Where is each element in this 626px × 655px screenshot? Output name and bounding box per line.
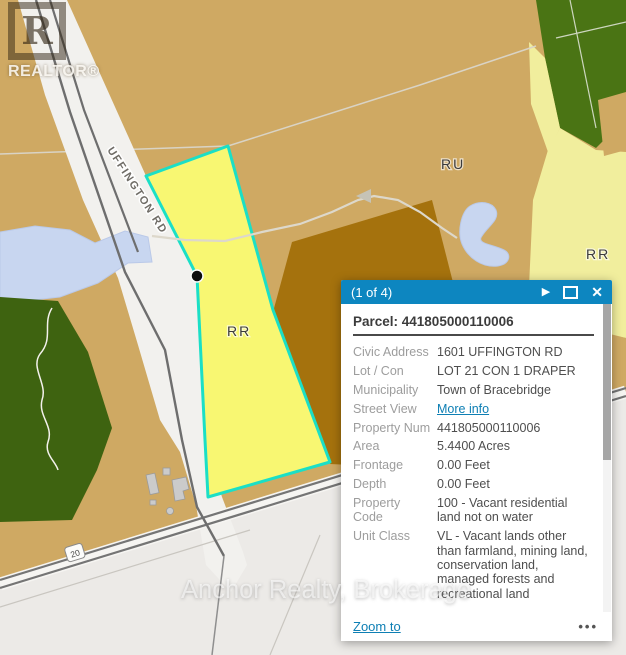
popup-header-icons: ▶ ✕ [542,285,603,299]
row-label: Lot / Con [353,364,433,378]
table-row: Property Code 100 - Vacant residential l… [353,496,594,525]
row-label: Unit Class [353,529,433,601]
table-row: Area 5.4400 Acres [353,439,594,453]
row-value: 5.4400 Acres [437,439,594,453]
row-value: 100 - Vacant residential land not on wat… [437,496,594,525]
parcel-title: Parcel: 441805000110006 [353,314,594,329]
realtor-watermark: R REALTOR® [8,2,100,81]
row-value: 0.00 Feet [437,477,594,491]
zoom-to-link[interactable]: Zoom to [353,619,401,634]
parcel-popup: (1 of 4) ▶ ✕ Parcel: 441805000110006 Civ… [341,280,612,641]
row-value: 1601 UFFINGTON RD [437,345,594,359]
scrollbar-thumb[interactable] [603,304,611,460]
next-feature-icon[interactable]: ▶ [542,287,550,298]
table-row: Frontage 0.00 Feet [353,458,594,472]
zone-label-rr-east: RR [586,246,610,262]
table-row: Unit Class VL - Vacant lands other than … [353,529,594,601]
table-row: Civic Address 1601 UFFINGTON RD [353,345,594,359]
row-label: Property Num [353,421,433,435]
row-label: Property Code [353,496,433,525]
row-value: 441805000110006 [437,421,594,435]
divider [353,334,594,336]
row-label: Frontage [353,458,433,472]
row-value: LOT 21 CON 1 DRAPER [437,364,594,378]
selected-point-marker[interactable] [191,270,203,282]
row-label: Municipality [353,383,433,397]
more-actions-button[interactable]: ••• [578,619,598,634]
popup-footer: Zoom to ••• [341,612,612,641]
popup-pagination: (1 of 4) [351,285,392,300]
map-viewer: 20 RU RR RR UFFINGTON RD R REALTOR® (1 o… [0,0,626,655]
table-row: Property Num 441805000110006 [353,421,594,435]
row-label: Civic Address [353,345,433,359]
row-label: Area [353,439,433,453]
popup-scrollbar[interactable] [603,304,611,612]
zone-label-rr-parcel: RR [227,323,251,339]
realtor-logo-letter: R [21,12,53,50]
realtor-logo-icon: R [8,2,66,60]
row-value: VL - Vacant lands other than farmland, m… [437,529,594,601]
row-label: Street View [353,402,433,416]
row-label: Depth [353,477,433,491]
close-icon[interactable]: ✕ [591,285,603,299]
popup-header[interactable]: (1 of 4) ▶ ✕ [341,280,612,304]
table-row: Depth 0.00 Feet [353,477,594,491]
row-value: 0.00 Feet [437,458,594,472]
more-info-link[interactable]: More info [437,402,489,416]
table-row: Lot / Con LOT 21 CON 1 DRAPER [353,364,594,378]
maximize-icon[interactable] [563,286,578,299]
zone-label-ru: RU [441,156,465,172]
realtor-watermark-text: REALTOR® [8,63,100,81]
table-row: Street View More info [353,402,594,416]
popup-body: Parcel: 441805000110006 Civic Address 16… [341,304,612,612]
table-row: Municipality Town of Bracebridge [353,383,594,397]
row-value: Town of Bracebridge [437,383,594,397]
